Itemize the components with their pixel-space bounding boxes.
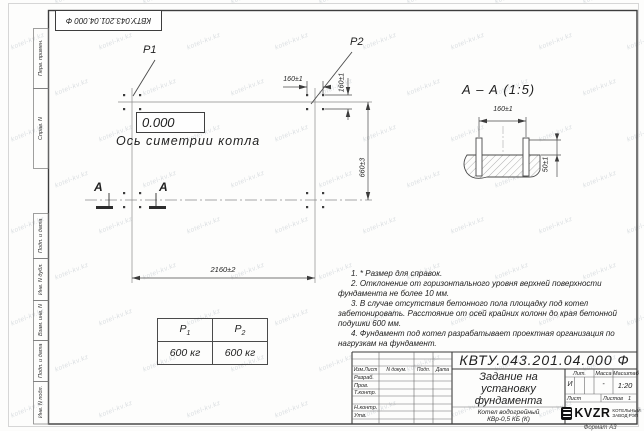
- load-table-header-p2: P2: [213, 319, 268, 342]
- title-block-doc-number: КВТУ.043.201.04.000 Ф: [452, 352, 637, 369]
- dim-160-horizontal: 160±1: [276, 76, 310, 83]
- title-block-listov-value: 1: [628, 396, 631, 402]
- load-table-header-p1: P1: [158, 319, 213, 342]
- margin-label-podp-data-1: Подп. и дата: [34, 214, 48, 257]
- load-table-value-p2: 600 кг: [213, 342, 268, 365]
- margin-label-inv-podl: Инв. N подл.: [34, 382, 48, 422]
- section-view-title: А – А (1:5): [462, 82, 535, 97]
- title-block-lit-label: Лит.: [565, 371, 594, 377]
- title-block-title-line2: установку: [452, 383, 565, 395]
- section-mark-letter-a-right: А: [159, 180, 168, 194]
- load-point-p1-label: P1: [143, 44, 156, 56]
- page: { "watermark": { "text": "kotel-kv.kz" }…: [0, 0, 644, 430]
- dim-2160: 2160±2: [200, 265, 246, 274]
- title-block-masshtab-value: 1:20: [613, 381, 637, 390]
- note-4: 4. Фундамент под котел разрабатывает про…: [338, 329, 634, 349]
- load-table-value-p1: 600 кг: [158, 342, 213, 365]
- margin-label-vzam-inv: Взам. инв. N: [34, 301, 48, 339]
- title-block-massa-label: Масса: [594, 371, 613, 377]
- title-block-col-izm: Изм.Лист: [352, 367, 379, 373]
- kvzr-logo-caption: КОТЕЛЬНЫЙ ЗАВОД РЭП: [612, 408, 640, 418]
- section-dim-50: 50±1: [543, 149, 552, 181]
- title-block-col-doc: N докум.: [379, 367, 414, 373]
- notes-block: 1. * Размер для справок. 2. Отклонение о…: [338, 269, 634, 349]
- load-point-p2-label: P2: [350, 36, 363, 48]
- title-block-list-label: Лист: [567, 396, 581, 402]
- margin-label-inv-dubl: Инв. N дубл.: [34, 259, 48, 299]
- load-table-header-row: P1 P2: [158, 319, 268, 342]
- load-table: P1 P2 600 кг 600 кг: [157, 318, 268, 365]
- title-block-massa-value: -: [594, 381, 613, 388]
- title-block-row-prov: Пров.: [354, 383, 369, 389]
- title-block-row-tkontr: Т.контр.: [354, 390, 376, 396]
- section-dim-160: 160±1: [485, 106, 521, 113]
- title-block-row-nkontr: Н.контр.: [354, 405, 377, 411]
- title-block-col-data: Дата: [433, 367, 452, 373]
- kvzr-logo-icon: [561, 407, 572, 420]
- section-mark-letter-a-left: А: [94, 180, 103, 194]
- elevation-mark: 0.000: [136, 112, 205, 133]
- title-block-title-line1: Задание на: [452, 371, 565, 383]
- note-3: 3. В случае отсутствия бетонного пола пл…: [338, 299, 634, 329]
- margin-label-podp-data-2: Подп. и дата: [34, 341, 48, 380]
- note-2: 2. Отклонение от горизонтального уровня …: [338, 279, 634, 299]
- dim-160-vertical: 160±1: [339, 65, 348, 101]
- title-block-title-line3: фундамента: [452, 395, 565, 407]
- title-block-product-line1: Котел водогрейный: [452, 409, 565, 416]
- title-block-col-podp: Подп.: [414, 367, 433, 373]
- load-table-value-row: 600 кг 600 кг: [158, 342, 268, 365]
- dim-660: 660±3: [360, 148, 369, 188]
- title-block-masshtab-label: Масштаб: [613, 371, 637, 377]
- margin-label-sprav-n: Справ. N: [34, 89, 48, 167]
- boiler-symmetry-axis-label: Ось симетрии котла: [116, 134, 260, 148]
- title-block-row-utv: Утв.: [354, 413, 367, 419]
- title-block-listov-label: Листов: [603, 396, 623, 402]
- title-block-product-line2: КВр-0,5 КБ (К): [452, 416, 565, 423]
- title-block-lit-value: И: [565, 381, 575, 388]
- margin-label-perv-primen: Перв. примен.: [34, 29, 48, 87]
- title-block-row-razrab: Разраб.: [354, 375, 374, 381]
- note-1: 1. * Размер для справок.: [338, 269, 634, 279]
- top-stamp-doc-number: КВТУ.043.201.04.000 Ф: [56, 11, 161, 29]
- kvzr-logo: KVZR КОТЕЛЬНЫЙ ЗАВОД РЭП: [566, 403, 636, 423]
- kvzr-logo-text: KVZR: [574, 406, 610, 420]
